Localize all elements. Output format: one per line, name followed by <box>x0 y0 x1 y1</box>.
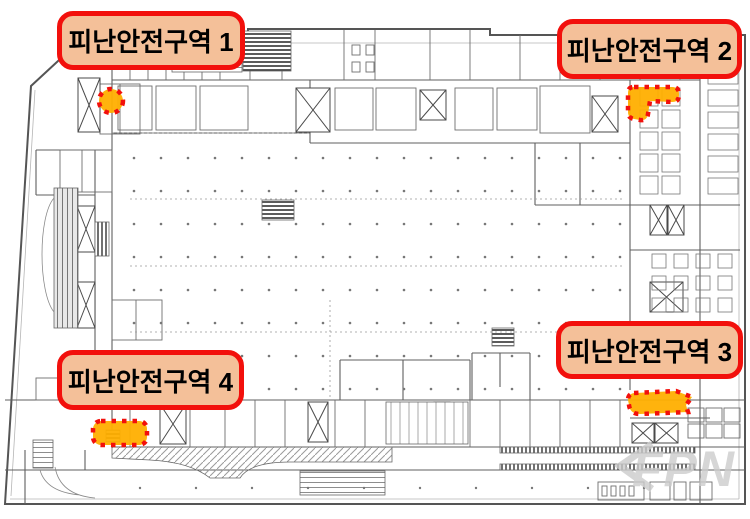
fpn-watermark-text: FPN <box>632 441 735 497</box>
fpn-watermark-group: FPN <box>620 441 735 497</box>
evacuation-zone-label-1: 피난안전구역 1 <box>57 11 245 70</box>
evacuation-zone-label-3: 피난안전구역 3 <box>556 321 743 379</box>
evacuation-zone-label-4: 피난안전구역 4 <box>57 350 244 410</box>
evacuation-zone-label-2: 피난안전구역 2 <box>557 19 742 79</box>
floor-plan-figure: FPN 피난안전구역 1 피난안전구역 2 피난안전구역 3 피난안전구역 4 <box>0 0 750 519</box>
